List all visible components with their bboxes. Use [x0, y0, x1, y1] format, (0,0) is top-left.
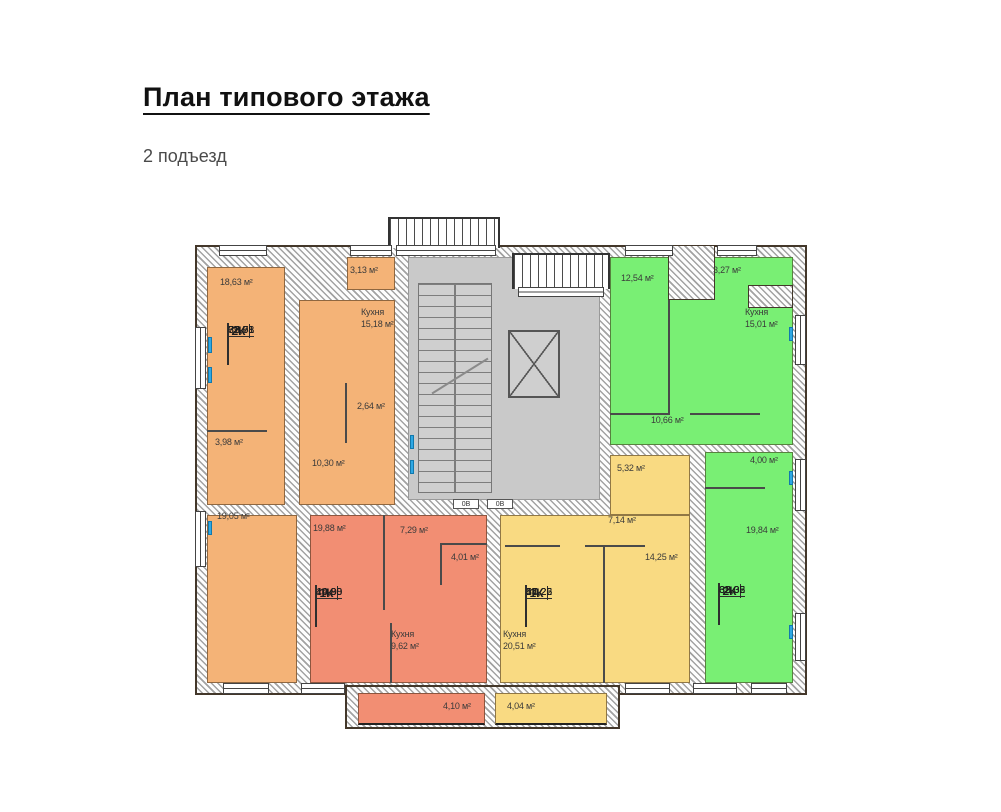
apartment-area-orange [207, 267, 285, 505]
room-area-label: 14,25 м² [645, 552, 678, 564]
apartment-info-table: 2К 37,68 69,78 72,91 [227, 323, 229, 365]
radiator-mark [208, 337, 212, 353]
room-area-label: 3,98 м² [215, 437, 243, 449]
room-area-label: 3,13 м² [350, 265, 378, 277]
room-area-label: 18,63 м² [220, 277, 253, 289]
window [795, 315, 806, 365]
page-title: План типового этажа [143, 82, 430, 113]
room-area-label: 7,14 м² [608, 515, 636, 527]
area-value: 72,91 [228, 324, 254, 336]
room-area-label: 12,54 м² [621, 273, 654, 285]
window [717, 245, 757, 256]
radiator-mark [789, 471, 793, 485]
door-tag: 0В [487, 499, 513, 509]
room-area-label: Кухня 15,18 м² [361, 307, 394, 330]
window [693, 683, 737, 694]
apartment-info-table: 1К 14,25 47,22 51,26 [525, 585, 527, 627]
apartment-area-orange [207, 515, 297, 683]
stair-balcony-railing [388, 217, 500, 248]
window [625, 683, 670, 694]
partition-wall [440, 543, 442, 585]
partition-wall [690, 413, 760, 415]
room-area-label: 19,88 м² [313, 523, 346, 535]
partition-wall [383, 515, 385, 610]
partition-wall [207, 430, 267, 432]
room-area-label: 4,00 м² [750, 455, 778, 467]
window [195, 327, 206, 389]
window [350, 245, 392, 256]
window [795, 613, 806, 661]
apartment-info-table: 1К 19,88 40,80 44,90 [315, 585, 317, 627]
stair-window [396, 245, 496, 256]
room-area-label: 4,10 м² [443, 701, 471, 713]
room-area-label: 4,01 м² [451, 552, 479, 564]
window [223, 683, 269, 694]
room-area-label: 10,30 м² [312, 458, 345, 470]
window [219, 245, 267, 256]
radiator-mark [789, 625, 793, 639]
window [625, 245, 673, 256]
room-area-label: 4,04 м² [507, 701, 535, 713]
window [195, 511, 206, 567]
elevator-shaft [508, 330, 560, 398]
room-area-label: Кухня 15,01 м² [745, 307, 778, 330]
radiator-mark [410, 435, 414, 449]
room-area-label: 19,05 м² [217, 511, 250, 523]
room-area-label: Кухня 9,62 м² [391, 629, 419, 652]
room-area-label: 3,27 м² [713, 265, 741, 277]
partition-wall [705, 487, 765, 489]
radiator-mark [789, 327, 793, 341]
wall-notch [748, 285, 793, 308]
apartment-info-table: 2К 32,38 62,05 65,32 [718, 583, 720, 625]
room-area-label: 5,32 м² [617, 463, 645, 475]
loggia-railing [512, 253, 610, 289]
room-area-label: 10,66 м² [651, 415, 684, 427]
area-value: 51,26 [526, 586, 552, 598]
partition-wall [440, 543, 487, 545]
radiator-mark [208, 367, 212, 383]
partition-wall [345, 383, 347, 443]
room-area-label: Кухня 20,51 м² [503, 629, 536, 652]
partition-wall [505, 545, 560, 547]
room-area-label: 7,29 м² [400, 525, 428, 537]
partition-wall [585, 545, 645, 547]
entrance-subtitle: 2 подъезд [143, 146, 227, 167]
partition-wall [668, 300, 670, 413]
door-tag: 0В [453, 499, 479, 509]
area-value: 44,90 [316, 586, 342, 598]
area-value: 65,32 [719, 584, 745, 596]
radiator-mark [208, 521, 212, 535]
loggia-window [518, 287, 604, 297]
room-area-label: 2,64 м² [357, 401, 385, 413]
wall-notch [668, 245, 715, 300]
partition-wall [603, 545, 605, 683]
floor-plan: 0В 0В 18,63 м² 3,13 м² Кухня 15,18 м² 2,… [195, 215, 807, 737]
radiator-mark [410, 460, 414, 474]
staircase [418, 283, 492, 493]
window [301, 683, 345, 694]
window [795, 459, 806, 511]
window [751, 683, 787, 694]
room-area-label: 19,84 м² [746, 525, 779, 537]
